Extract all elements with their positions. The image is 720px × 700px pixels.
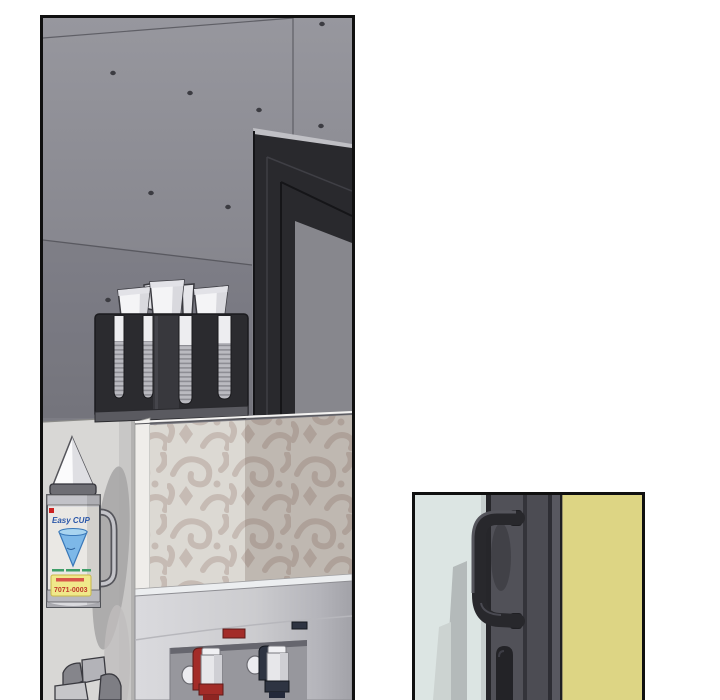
handle-shadow (491, 523, 511, 591)
comic-panel-hallway: Easy CUP 7071-0003 (40, 15, 355, 700)
label-red-chip (49, 508, 54, 513)
cooler-cabinet (135, 412, 352, 594)
sticker-phone-text: 7071-0003 (54, 587, 88, 594)
dispenser-cap (50, 484, 96, 495)
cold-tap-spout (269, 692, 285, 698)
yellow-wall (563, 495, 643, 700)
comic-panel-door-handle (412, 492, 645, 700)
label-fine-print (52, 569, 91, 572)
cup-holder (95, 314, 248, 422)
sticker-small-text (56, 578, 84, 582)
dispenser-phone-sticker: 7071-0003 (51, 575, 91, 596)
cabinet-shade (245, 415, 352, 584)
hot-tap-spout (203, 695, 219, 700)
door-glass-pane (293, 218, 352, 415)
office-door (253, 128, 352, 415)
door-handle-scene (415, 495, 642, 700)
water-cooler (135, 574, 352, 700)
dispenser-brand-text: Easy CUP (52, 516, 90, 525)
cabinet-edge-highlight (135, 418, 150, 594)
hot-indicator (223, 629, 245, 638)
cold-indicator (292, 622, 307, 629)
hallway-scene: Easy CUP 7071-0003 (43, 18, 352, 700)
